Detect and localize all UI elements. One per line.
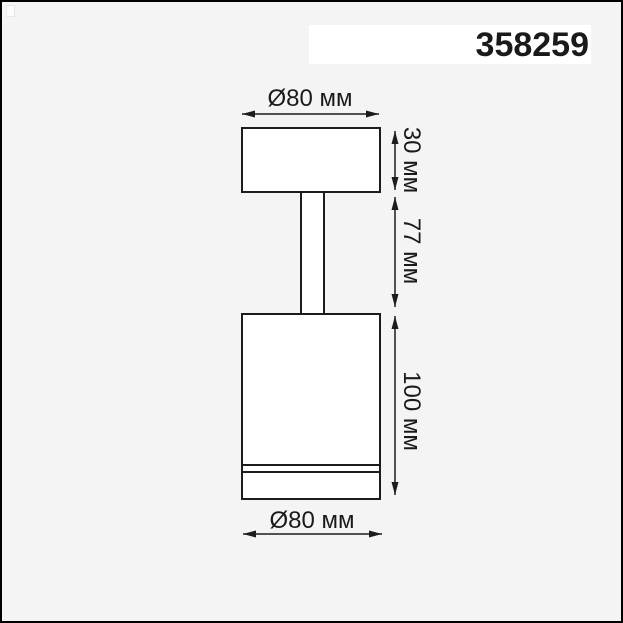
arrow-right-icon bbox=[366, 111, 379, 118]
arrow-left-icon bbox=[243, 531, 256, 538]
cap-height-label: 30 мм bbox=[399, 127, 423, 193]
arrow-left-icon bbox=[242, 111, 255, 118]
product-dimension-drawing: 358259 bbox=[0, 0, 623, 623]
arrow-up-icon bbox=[392, 316, 399, 329]
stem-height-label: 77 мм bbox=[399, 218, 423, 284]
arrow-up-icon bbox=[392, 197, 399, 210]
bottom-diameter-label: Ø80 мм bbox=[269, 509, 354, 533]
arrow-right-icon bbox=[369, 531, 382, 538]
body-height-label: 100 мм bbox=[399, 371, 423, 451]
top-diameter-label: Ø80 мм bbox=[267, 87, 352, 111]
stem-outline bbox=[301, 192, 324, 314]
cap-outline bbox=[242, 128, 380, 192]
arrow-down-icon bbox=[392, 482, 399, 495]
arrow-down-icon bbox=[392, 294, 399, 307]
